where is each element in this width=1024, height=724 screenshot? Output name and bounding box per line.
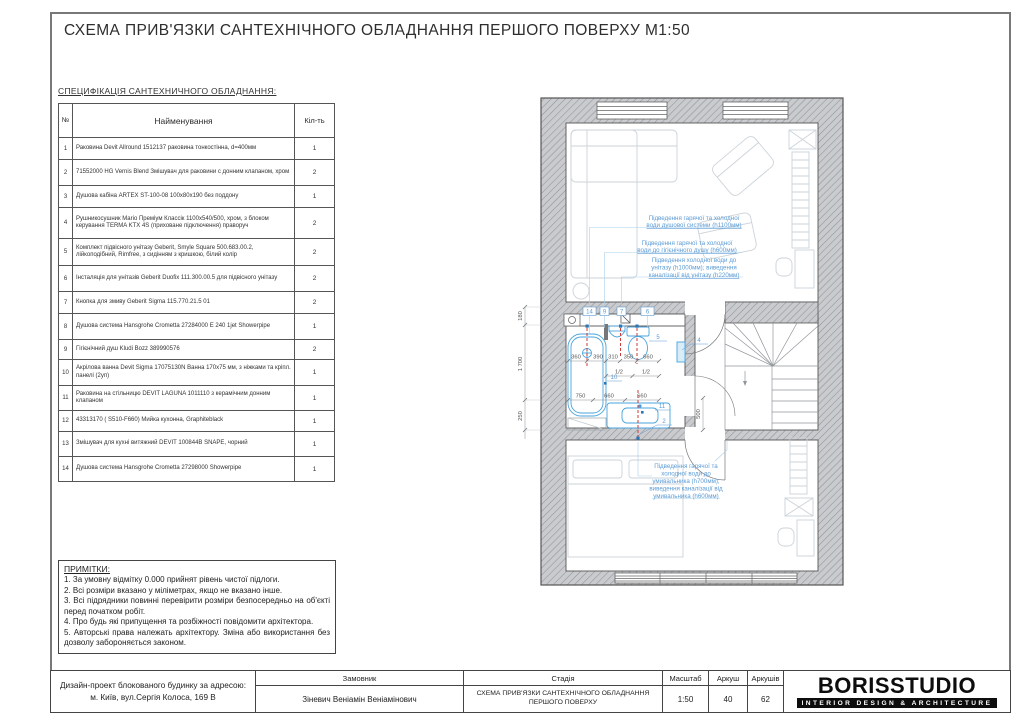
spec-cell-name: 71552000 HG Vernis Blend Змішувач для ра…	[73, 160, 295, 186]
spec-cell-num: 10	[59, 360, 73, 386]
note-item: 2. Всі розміри вказано у міліметрах, якщ…	[64, 586, 330, 597]
svg-text:1/2: 1/2	[642, 370, 650, 376]
svg-text:350: 350	[624, 355, 634, 361]
svg-text:660: 660	[643, 355, 653, 361]
svg-text:180: 180	[518, 311, 524, 321]
svg-text:390: 390	[593, 355, 603, 361]
sheet-value: 40	[709, 686, 748, 712]
annotation-basin: Підведення гарячої та	[654, 463, 718, 470]
svg-text:660: 660	[604, 394, 614, 400]
svg-text:умивальника (h600мм): умивальника (h600мм)	[653, 493, 719, 500]
spec-row: 4Рушникосушник Mario Преміум Классік 110…	[59, 208, 335, 239]
spec-cell-qty: 2	[295, 266, 335, 292]
spec-cell-qty: 2	[295, 292, 335, 314]
scale-label: Масштаб	[663, 671, 709, 686]
sheet-title: СХЕМА ПРИВ'ЯЗКИ САНТЕХНІЧНОГО ОБЛАДНАННЯ…	[64, 22, 690, 40]
annotation-toilet: Підведення холодної води до	[652, 257, 737, 264]
svg-text:360: 360	[571, 355, 581, 361]
spec-cell-qty: 1	[295, 186, 335, 208]
spec-cell-qty: 1	[295, 457, 335, 482]
svg-text:холодної води до: холодної води до	[661, 471, 711, 478]
svg-text:каналізації від унітазу (h220м: каналізації від унітазу (h220мм)	[649, 272, 740, 279]
spec-row: 5Комплект підвісного унітазу Geberit, Sm…	[59, 239, 335, 266]
annotation-shower: Підведення гарячої та холодної	[649, 215, 740, 222]
spec-cell-num: 4	[59, 208, 73, 239]
svg-text:250: 250	[518, 411, 524, 421]
spec-header-num: №	[59, 104, 73, 138]
spec-row: 10Акрілова ванна Devit Sigma 17075130N В…	[59, 360, 335, 386]
stage-label: Стадія	[464, 671, 663, 686]
spec-row: 8Душова система Hansgrohe Crometta 27284…	[59, 314, 335, 340]
note-item: 5. Авторські права належать архітектору.…	[64, 628, 330, 649]
spec-row: 11Раковина на стільницю DEVIT LAGUNA 101…	[59, 386, 335, 411]
svg-text:води до гігієнічного душу (h60: води до гігієнічного душу (h600мм)	[637, 247, 737, 254]
notes-title: ПРИМІТКИ:	[64, 564, 330, 574]
customer-label: Замовник	[256, 671, 464, 686]
spec-row: 271552000 HG Vernis Blend Змішувач для р…	[59, 160, 335, 186]
note-item: 4. Про будь які припущення та розбіжност…	[64, 617, 330, 628]
spec-row: 6Інсталяція для унітазів Geberit Duofix …	[59, 266, 335, 292]
note-item: 3. Всі підрядники повинні перевірити роз…	[64, 596, 330, 617]
spec-row: 13Змішувач для кухні витяжний DEVIT 1008…	[59, 432, 335, 457]
logo-text: BORISSTUDIO	[818, 675, 976, 697]
spec-cell-num: 2	[59, 160, 73, 186]
spec-cell-num: 5	[59, 239, 73, 266]
spec-header-qty: Кіл-ть	[295, 104, 335, 138]
spec-cell-num: 11	[59, 386, 73, 411]
svg-text:виведення каналізації від: виведення каналізації від	[649, 486, 723, 493]
spec-cell-qty: 2	[295, 239, 335, 266]
spec-title: СПЕЦИФІКАЦІЯ САНТЕХНИЧНОГО ОБЛАДНАННЯ:	[58, 86, 334, 96]
spec-cell-name: Комплект підвісного унітазу Geberit, Smy…	[73, 239, 295, 266]
spec-cell-qty: 2	[295, 340, 335, 360]
towel-rail	[677, 342, 685, 362]
svg-text:660: 660	[637, 394, 647, 400]
spec-row: 3Душова кабіна ARTEX ST-100-08 100х80х19…	[59, 186, 335, 208]
spec-cell-name: Душова система Hansgrohe Crometta 272980…	[73, 457, 295, 482]
spec-cell-qty: 1	[295, 138, 335, 160]
specification-section: СПЕЦИФІКАЦІЯ САНТЕХНИЧНОГО ОБЛАДНАННЯ: №…	[58, 86, 334, 482]
stage-value: СХЕМА ПРИВ'ЯЗКИ САНТЕХНІЧНОГО ОБЛАДНАННЯ…	[464, 686, 663, 712]
spec-cell-name: Кнопка для змиву Geberit Sigma 115.770.2…	[73, 292, 295, 314]
svg-text:750: 750	[576, 394, 586, 400]
spec-cell-name: Раковина Devit Allround 1512137 раковина…	[73, 138, 295, 160]
logo-subtitle: INTERIOR DESIGN & ARCHITECTURE	[797, 698, 998, 708]
svg-text:11: 11	[659, 404, 666, 410]
spec-row: 1243313170 ( S510-F660) Мийка кухонна, G…	[59, 411, 335, 432]
bathtub	[568, 334, 606, 416]
spec-cell-num: 8	[59, 314, 73, 340]
sheets-value: 62	[748, 686, 784, 712]
customer-value: Зіневич Веніамін Веніамінович	[256, 686, 464, 712]
spec-cell-qty: 1	[295, 411, 335, 432]
spec-cell-name: Раковина на стільницю DEVIT LAGUNA 10111…	[73, 386, 295, 411]
sheets-label: Аркушів	[748, 671, 784, 686]
spec-cell-num: 14	[59, 457, 73, 482]
svg-text:1 700: 1 700	[518, 357, 524, 372]
svg-text:унітазу (h1000мм); виведення: унітазу (h1000мм); виведення	[651, 265, 736, 272]
spec-cell-num: 1	[59, 138, 73, 160]
spec-cell-num: 6	[59, 266, 73, 292]
spec-cell-name: 43313170 ( S510-F660) Мийка кухонна, Gra…	[73, 411, 295, 432]
spec-cell-qty: 1	[295, 386, 335, 411]
spec-header-name: Найменування	[73, 104, 295, 138]
spec-cell-name: Рушникосушник Mario Преміум Классік 1100…	[73, 208, 295, 239]
spec-row: 7Кнопка для змиву Geberit Sigma 115.770.…	[59, 292, 335, 314]
svg-text:умивальника (h700мм);: умивальника (h700мм);	[652, 478, 719, 485]
spec-header-row: № Найменування Кіл-ть	[59, 104, 335, 138]
spec-cell-qty: 2	[295, 208, 335, 239]
spec-row: 14Душова система Hansgrohe Crometta 2729…	[59, 457, 335, 482]
svg-text:1/2: 1/2	[615, 370, 623, 376]
spec-cell-qty: 1	[295, 360, 335, 386]
spec-cell-name: Душова система Hansgrohe Crometta 272840…	[73, 314, 295, 340]
floor-plan-svg: Підведення гарячої та холодної води душо…	[505, 88, 855, 598]
title-block: Дизайн-проект блокованого будинку за адр…	[50, 670, 1011, 713]
sheet-label: Аркуш	[709, 671, 748, 686]
spec-cell-name: Змішувач для кухні витяжний DEVIT 100844…	[73, 432, 295, 457]
studio-logo: BORISSTUDIO INTERIOR DESIGN & ARCHITECTU…	[784, 671, 1010, 712]
project-description: Дизайн-проект блокованого будинку за адр…	[51, 671, 256, 712]
scale-value: 1:50	[663, 686, 709, 712]
spec-cell-name: Гігієнічний душ Kludi Bozz 389990576	[73, 340, 295, 360]
spec-cell-qty: 1	[295, 432, 335, 457]
spec-cell-num: 9	[59, 340, 73, 360]
spec-cell-qty: 1	[295, 314, 335, 340]
spec-cell-name: Душова кабіна ARTEX ST-100-08 100х80х190…	[73, 186, 295, 208]
spec-cell-num: 7	[59, 292, 73, 314]
spec-table-body: 1Раковина Devit Allround 1512137 раковин…	[59, 138, 335, 482]
spec-cell-name: Акрілова ванна Devit Sigma 17075130N Ван…	[73, 360, 295, 386]
spec-cell-qty: 2	[295, 160, 335, 186]
annotation-hyg-shower: Підведення гарячої та холодної	[642, 240, 733, 247]
spec-row: 9Гігієнічний душ Kludi Bozz 3899905762	[59, 340, 335, 360]
svg-text:14: 14	[586, 310, 593, 316]
svg-text:310: 310	[608, 355, 618, 361]
spec-cell-name: Інсталяція для унітазів Geberit Duofix 1…	[73, 266, 295, 292]
svg-text:води душової системи (h1100мм): води душової системи (h1100мм)	[646, 222, 741, 229]
svg-text:500: 500	[696, 409, 702, 419]
notes-box: ПРИМІТКИ: 1. За умовну відмітку 0.000 пр…	[58, 560, 336, 654]
spec-row: 1Раковина Devit Allround 1512137 раковин…	[59, 138, 335, 160]
spec-cell-num: 12	[59, 411, 73, 432]
spec-table: № Найменування Кіл-ть 1Раковина Devit Al…	[58, 103, 335, 482]
spec-cell-num: 3	[59, 186, 73, 208]
floor-plan: Підведення гарячої та холодної води душо…	[505, 88, 855, 598]
spec-cell-num: 13	[59, 432, 73, 457]
note-item: 1. За умовну відмітку 0.000 прийнят ріве…	[64, 575, 330, 586]
